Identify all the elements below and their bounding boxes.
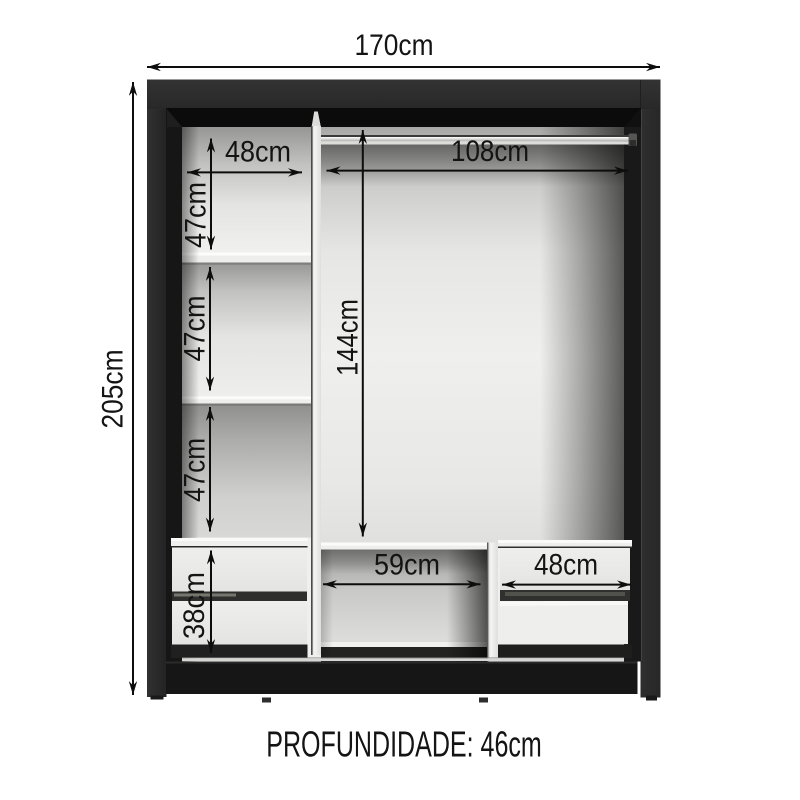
svg-text:PROFUNDIDADE: 46cm: PROFUNDIDADE: 46cm (266, 724, 542, 765)
svg-text:47cm: 47cm (179, 182, 213, 248)
svg-text:59cm: 59cm (374, 548, 440, 582)
svg-text:48cm: 48cm (225, 135, 291, 169)
svg-text:48cm: 48cm (534, 548, 598, 581)
svg-text:170cm: 170cm (354, 27, 433, 61)
svg-text:47cm: 47cm (178, 438, 211, 502)
svg-text:108cm: 108cm (451, 134, 529, 167)
svg-text:144cm: 144cm (331, 299, 364, 376)
svg-text:38cm: 38cm (178, 572, 211, 639)
svg-text:47cm: 47cm (178, 296, 212, 362)
svg-text:205cm: 205cm (95, 349, 129, 428)
